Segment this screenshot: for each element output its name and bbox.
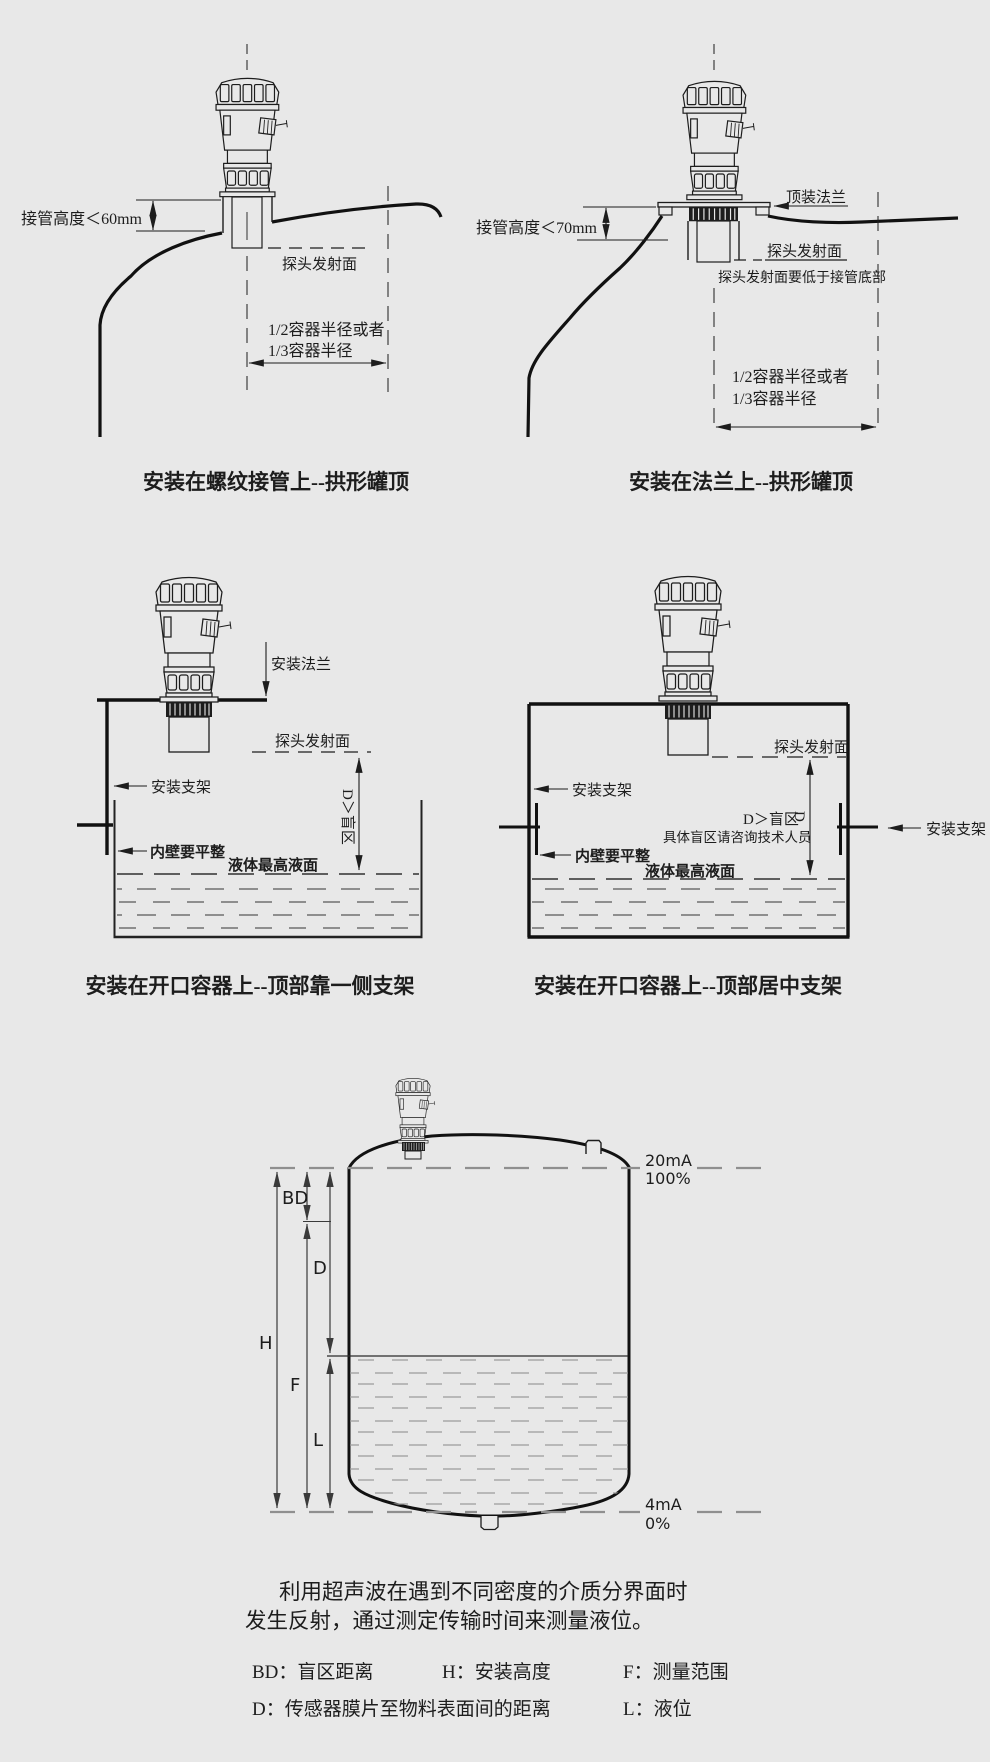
label-D: D (313, 1258, 327, 1279)
diagram-open-side-bracket: 安装法兰 探头发射面 安装支架 D＞盲区 内壁要平整 液体最高液面 安装在开口容… (77, 578, 423, 999)
mount-flange-label: 安装法兰 (271, 656, 331, 673)
pipe-height-label: 接管高度＜60mm (21, 210, 142, 228)
diagram-open-center-bracket: 探头发射面 安装支架 安装支架 D＞盲区 D 具体盲区请咨询技术人员 内壁要平整… (499, 577, 986, 999)
label-0pct: 0% (645, 1514, 670, 1533)
label-100pct: 100% (645, 1169, 691, 1188)
bracket-right-label: 安装支架 (926, 821, 986, 838)
ultrasonic-sensor (396, 1078, 435, 1143)
caption-threaded-dome: 安装在螺纹接管上--拱形罐顶 (143, 470, 409, 494)
description-line2: 发生反射，通过测定传输时间来测量液位。 (245, 1609, 654, 1633)
legend-l: L：液位 (623, 1698, 692, 1720)
radius-label-2: 1/3容器半径 (268, 342, 352, 360)
inner-wall-label: 内壁要平整 (150, 843, 225, 861)
caption-flange-dome: 安装在法兰上--拱形罐顶 (629, 470, 853, 494)
radius-label-1: 1/2容器半径或者 (268, 321, 384, 339)
diagram-measurement: 20mA 100% 4mA 0% BD D H F L (259, 1078, 775, 1533)
inner-wall-label: 内壁要平整 (575, 847, 650, 865)
tank-dome-right (768, 216, 958, 223)
ultrasonic-sensor (655, 577, 730, 702)
blind-zone-d-label: D (791, 811, 807, 822)
bracket-left-label: 安装支架 (572, 782, 632, 799)
tank-dome-right (272, 204, 441, 222)
ultrasonic-sensor (216, 78, 287, 196)
legend-h: H：安装高度 (442, 1661, 551, 1683)
liquid (117, 874, 419, 935)
label-F: F (290, 1375, 300, 1396)
blind-zone-label: D＞盲区 (743, 811, 799, 828)
label-L: L (313, 1430, 323, 1451)
sensor-horn (668, 719, 708, 755)
threaded-ring (402, 1142, 425, 1151)
bracket-left (499, 803, 540, 855)
sensor-horn (405, 1151, 421, 1159)
diagram-flange-dome: 顶装法兰 接管高度＜70mm 探头发射面 探头发射面要低于接管底部 1/2容器半… (476, 44, 958, 494)
radius-label-1: 1/2容器半径或者 (732, 368, 848, 386)
caption-open-side-bracket: 安装在开口容器上--顶部靠一侧支架 (86, 974, 415, 998)
description-line1: 利用超声波在遇到不同密度的介质分界面时 (279, 1580, 688, 1604)
max-level-label: 液体最高液面 (228, 856, 318, 874)
tank-dome-left (100, 233, 222, 437)
threaded-ring (665, 704, 711, 719)
label-BD: BD (282, 1188, 308, 1209)
liquid (532, 879, 845, 935)
symbol-legend: BD：盲区距离 H：安装高度 F：测量范围 D：传感器膜片至物料表面间的距离 L… (252, 1661, 729, 1720)
dim-extension-lines (136, 200, 221, 231)
legend-d: D：传感器膜片至物料表面间的距离 (252, 1698, 551, 1720)
caption-open-center-bracket: 安装在开口容器上--顶部居中支架 (534, 974, 842, 998)
principle-description: 利用超声波在遇到不同密度的介质分界面时 发生反射，通过测定传输时间来测量液位。 (245, 1580, 688, 1633)
ultrasonic-sensor (683, 81, 754, 199)
sensor-horn (697, 221, 730, 262)
bottom-drain-nozzle (481, 1516, 498, 1530)
probe-face-label: 探头发射面 (275, 733, 350, 750)
ultrasonic-sensor (156, 578, 231, 703)
dimension-lines (277, 1172, 331, 1508)
radius-label-2: 1/3容器半径 (732, 390, 816, 408)
bracket-right (837, 803, 878, 855)
probe-face-label: 探头发射面 (774, 739, 849, 756)
top-flange-label: 顶装法兰 (786, 189, 846, 206)
installation-diagram-figure: 接管高度＜60mm 探头发射面 1/2容器半径或者 1/3容器半径 安装在螺纹接… (0, 0, 990, 1762)
liquid (327, 1356, 628, 1517)
diagram-threaded-dome: 接管高度＜60mm 探头发射面 1/2容器半径或者 1/3容器半径 安装在螺纹接… (21, 44, 441, 494)
blind-zone-label: D＞盲区 (339, 789, 356, 845)
legend-bd: BD：盲区距离 (252, 1661, 373, 1683)
pipe-height-label: 接管高度＜70mm (476, 219, 597, 237)
probe-below-pipe-note: 探头发射面要低于接管底部 (718, 269, 886, 286)
label-20mA: 20mA (645, 1151, 692, 1170)
label-4mA: 4mA (645, 1495, 682, 1514)
sensor-horn (169, 717, 209, 752)
label-H: H (259, 1333, 273, 1354)
threaded-ring (689, 207, 738, 221)
tank-dome-left (528, 216, 662, 437)
consult-note: 具体盲区请咨询技术人员 (663, 829, 812, 845)
threaded-ring (166, 702, 212, 717)
ultrasonic-level-sensor-installation-sheet: 接管高度＜60mm 探头发射面 1/2容器半径或者 1/3容器半径 安装在螺纹接… (0, 0, 990, 1762)
bracket-label: 安装支架 (151, 779, 211, 796)
legend-f: F：测量范围 (623, 1661, 729, 1683)
max-level-label: 液体最高液面 (645, 862, 735, 880)
top-vent-nozzle (586, 1141, 601, 1155)
probe-face-label: 探头发射面 (767, 243, 842, 260)
probe-face-label: 探头发射面 (282, 256, 357, 273)
